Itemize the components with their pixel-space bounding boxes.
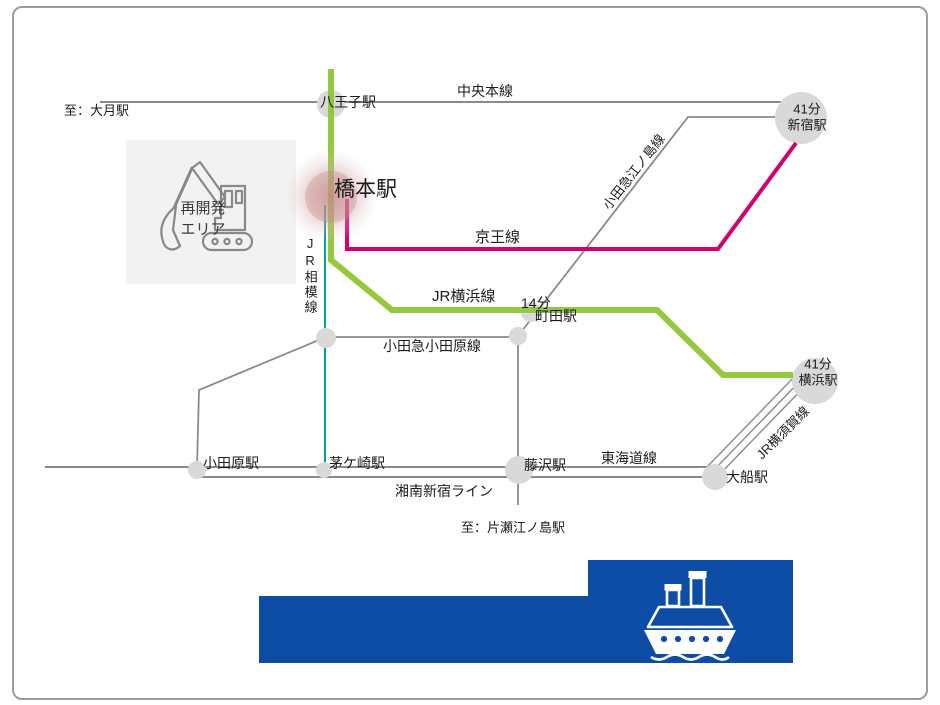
banner-left-block: [259, 596, 589, 663]
line-label-tokaido: 東海道線: [601, 450, 657, 467]
line-label-chuo: 中央本線: [457, 83, 513, 100]
station-label-hashimoto: 橋本駅: [334, 177, 397, 202]
redevelopment-area-label: 再開発 エリア: [180, 198, 225, 240]
station-label-hachioji: 八王子駅: [320, 94, 376, 111]
line-label-jr-sagami: JR相模線: [302, 236, 318, 315]
line-label-keio: 京王線: [475, 229, 520, 247]
endpoint-katase-label: 至：片瀬江ノ島駅: [461, 520, 565, 536]
keio-line-path: [347, 143, 796, 249]
station-label-yokohama: 横浜駅: [798, 372, 837, 388]
ofuna-station-node: [702, 464, 728, 490]
station-badge-shinjuku: 41分 新宿駅: [787, 101, 826, 132]
redevelopment-line2: エリア: [180, 219, 225, 240]
yokohama-minutes: 41分: [798, 356, 837, 372]
route-map-page: { "colors": { "ink": "#1c1c1c", "gray": …: [0, 0, 940, 705]
station-label-fujisawa: 藤沢駅: [524, 457, 566, 474]
odakyu-junction-node: [509, 327, 527, 345]
redevelopment-line1: 再開発: [180, 198, 225, 219]
station-label-odawara: 小田原駅: [203, 455, 259, 472]
endpoint-otsuki-label: 至：大月駅: [64, 103, 129, 119]
shinjuku-minutes: 41分: [787, 101, 826, 117]
station-label-shinjuku: 新宿駅: [787, 117, 826, 133]
yokohama-line-path: [331, 69, 793, 375]
station-label-chigasaki: 茅ケ崎駅: [329, 455, 385, 472]
station-label-machida: 町田駅: [535, 308, 577, 325]
sagami-odakyu-crossing-node: [316, 328, 336, 348]
station-label-ofuna: 大船駅: [726, 469, 768, 486]
line-label-jr-yokohama: JR横浜線: [432, 288, 495, 306]
line-label-odakyu-odawara: 小田急小田原線: [383, 338, 481, 355]
odakyu-odawara-path: [197, 337, 518, 468]
station-badge-yokohama: 41分 横浜駅: [798, 356, 837, 387]
line-label-shonan-shinjuku: 湘南新宿ライン: [395, 483, 493, 500]
